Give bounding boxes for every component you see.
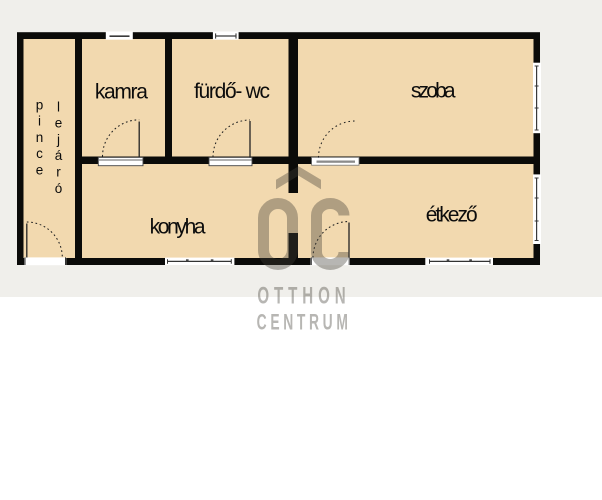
svg-text:konyha: konyha bbox=[150, 216, 206, 239]
svg-text:i: i bbox=[38, 114, 41, 129]
svg-text:ó: ó bbox=[55, 181, 63, 196]
svg-text:l: l bbox=[57, 99, 60, 114]
svg-text:étkező: étkező bbox=[426, 204, 478, 227]
svg-text:á: á bbox=[55, 148, 63, 163]
svg-text:c: c bbox=[36, 146, 43, 161]
svg-text:j: j bbox=[56, 132, 60, 147]
svg-text:r: r bbox=[56, 165, 61, 180]
svg-text:e: e bbox=[55, 116, 63, 131]
svg-text:n: n bbox=[36, 130, 44, 145]
svg-text:e: e bbox=[36, 162, 44, 177]
svg-text:OTTHON: OTTHON bbox=[257, 283, 350, 309]
svg-text:szoba: szoba bbox=[411, 80, 456, 103]
svg-text:fürdő- wc: fürdő- wc bbox=[194, 80, 270, 103]
svg-text:kamra: kamra bbox=[95, 81, 148, 104]
svg-text:CENTRUM: CENTRUM bbox=[257, 309, 352, 334]
svg-text:p: p bbox=[36, 98, 44, 113]
